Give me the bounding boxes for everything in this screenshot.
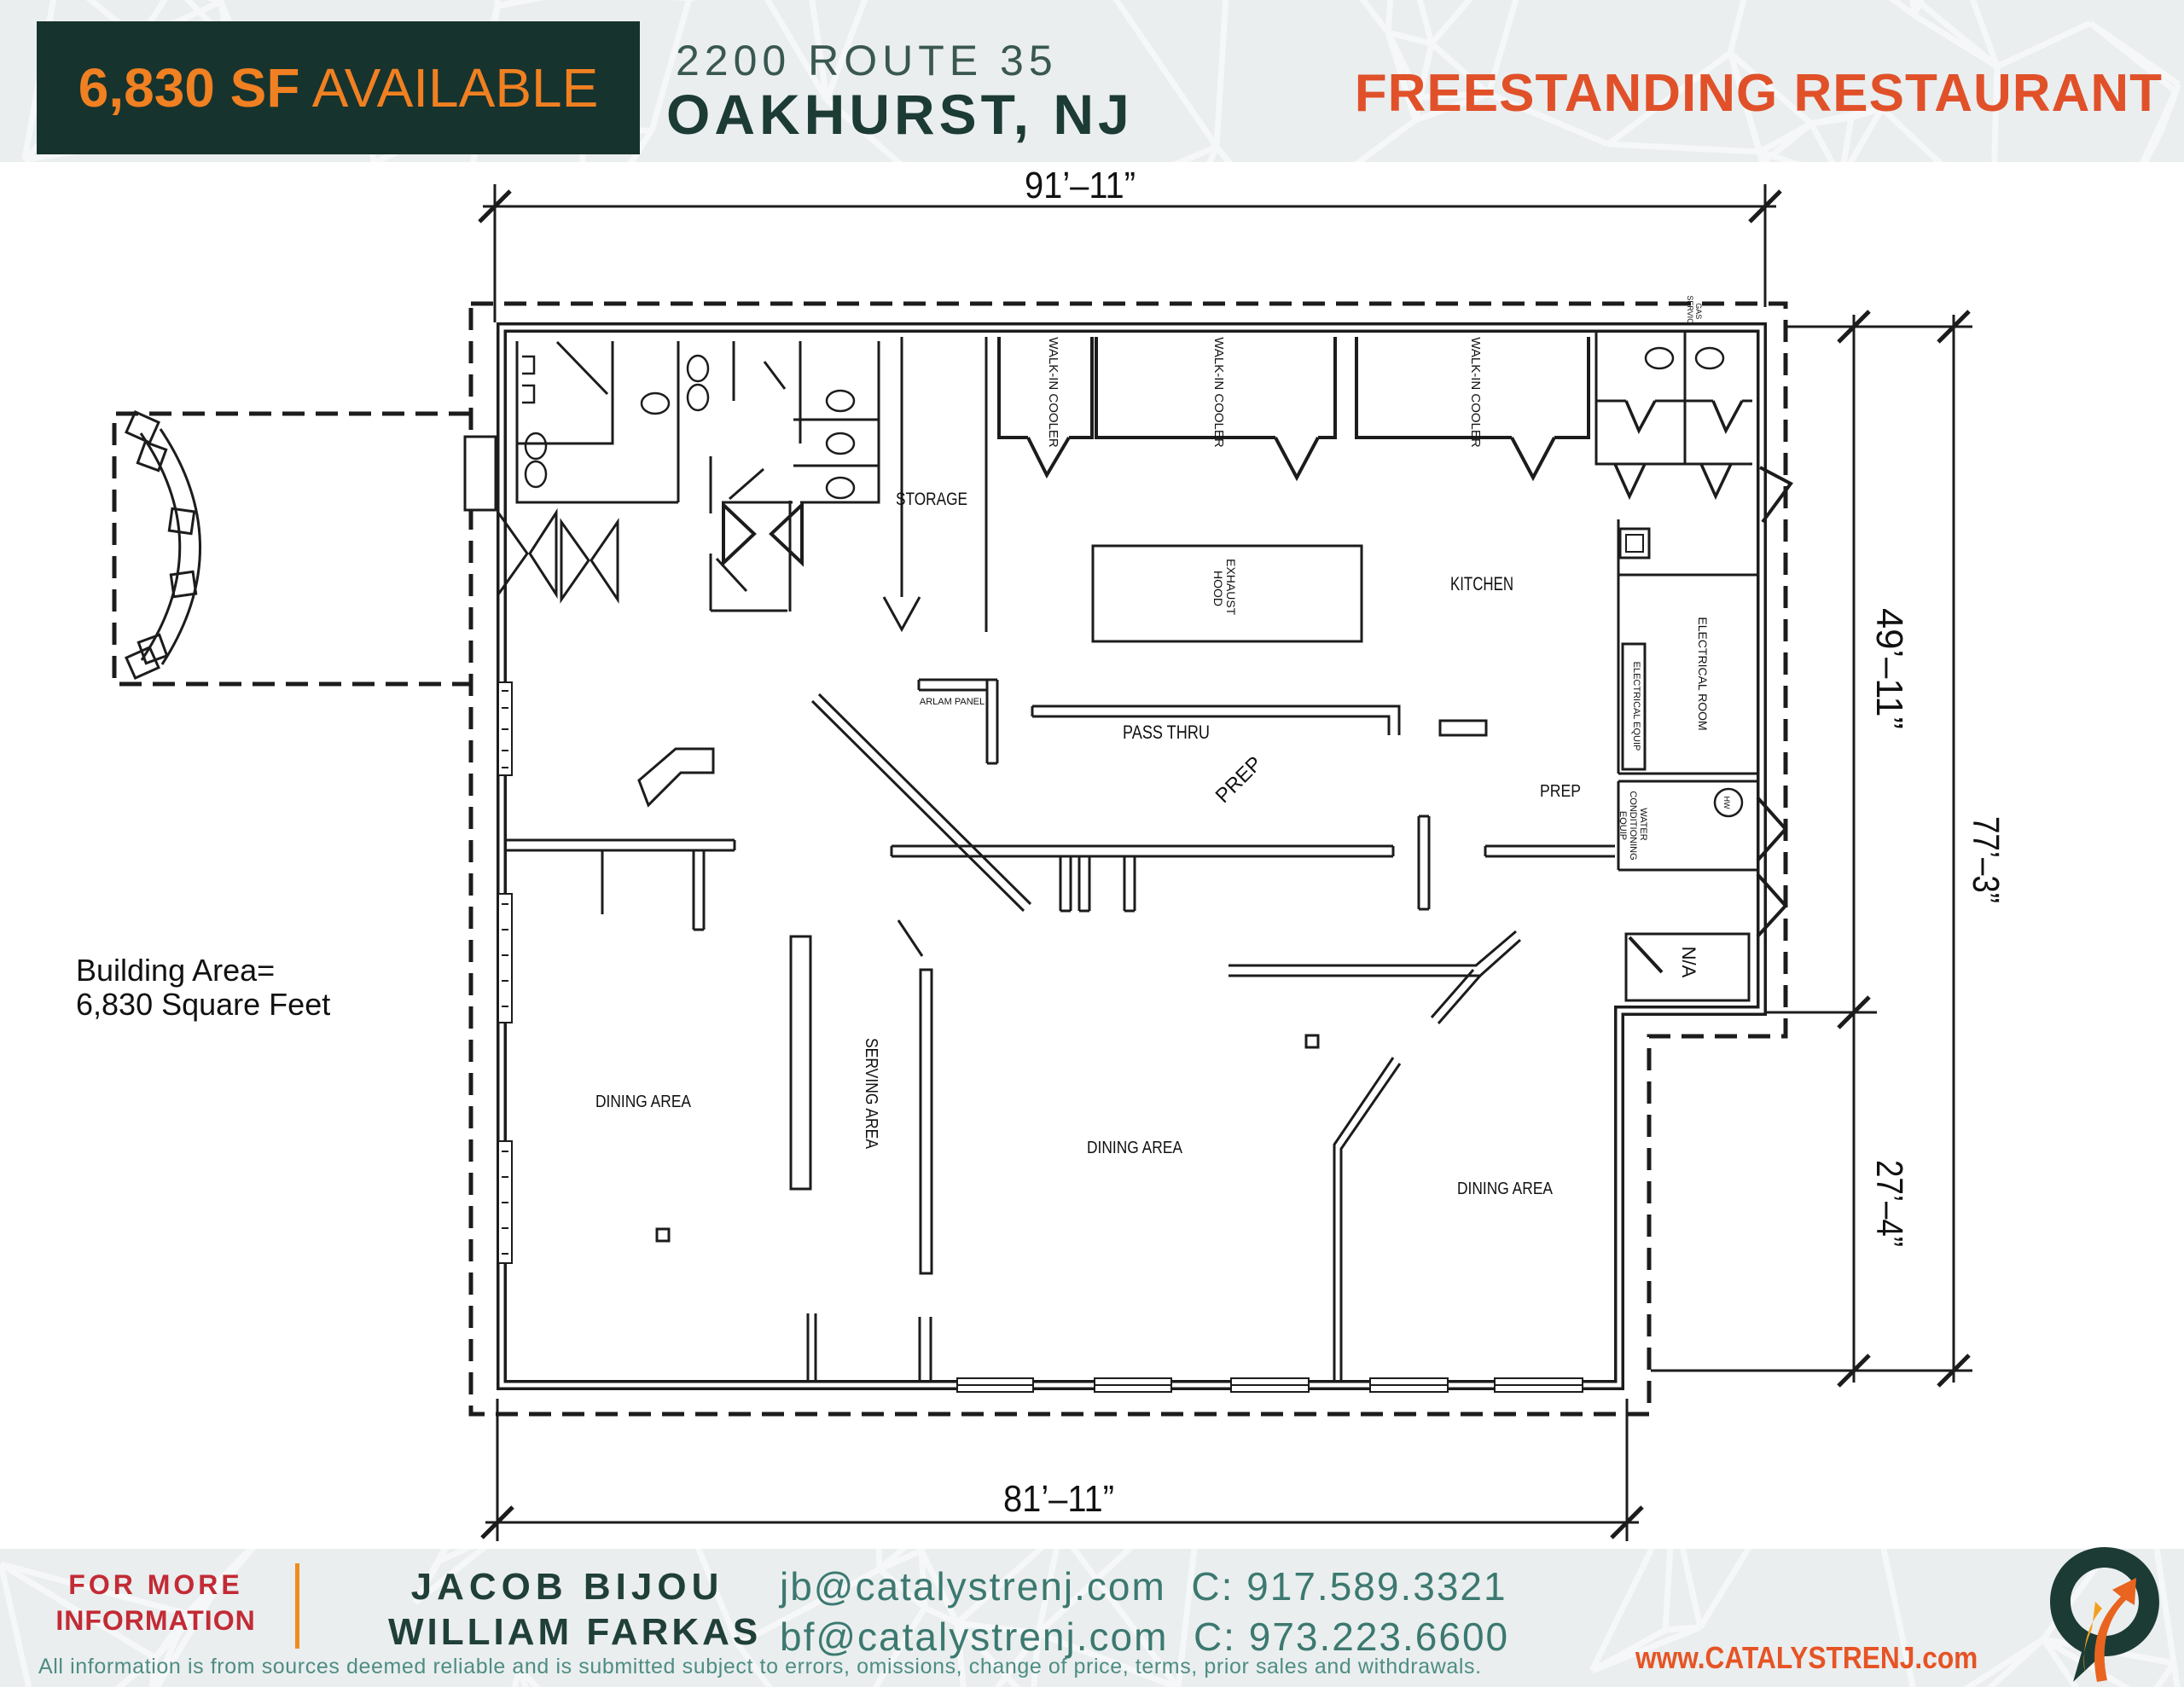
svg-text:DINING AREA: DINING AREA [1457, 1180, 1554, 1198]
svg-text:PREP: PREP [1540, 782, 1581, 801]
svg-text:HW: HW [1722, 797, 1731, 809]
svg-text:KITCHEN: KITCHEN [1450, 573, 1513, 594]
svg-text:81’–11”: 81’–11” [1003, 1478, 1114, 1520]
svg-text:49’–11”: 49’–11” [1868, 608, 1910, 729]
svg-text:6,830 Square Feet: 6,830 Square Feet [76, 987, 330, 1022]
svg-text:ELECTRICAL EQUIP: ELECTRICAL EQUIP [1631, 662, 1641, 751]
svg-text:91’–11”: 91’–11” [1025, 165, 1136, 206]
svg-text:DINING AREA: DINING AREA [595, 1093, 692, 1111]
svg-text:77’–3”: 77’–3” [1965, 816, 2007, 903]
svg-text:ELECTRICAL ROOM: ELECTRICAL ROOM [1696, 617, 1710, 730]
svg-text:WALK-IN COOLER: WALK-IN COOLER [1211, 337, 1226, 448]
svg-text:WALK-IN COOLER: WALK-IN COOLER [1468, 337, 1483, 448]
svg-text:STORAGE: STORAGE [896, 490, 967, 509]
svg-text:WALK-IN COOLER: WALK-IN COOLER [1046, 337, 1060, 448]
svg-text:27’–4”: 27’–4” [1868, 1160, 1910, 1247]
svg-text:EXHAUST HOOD: EXHAUST HOOD [1211, 559, 1238, 618]
svg-text:DINING AREA: DINING AREA [1087, 1139, 1183, 1157]
svg-text:PREP: PREP [1211, 752, 1267, 808]
svg-text:WATER CONDITIONINGEQUIP: WATER CONDITIONINGEQUIP [1618, 791, 1648, 860]
svg-text:N/A: N/A [1678, 947, 1699, 978]
svg-text:Building Area=: Building Area= [76, 953, 275, 988]
svg-text:PASS THRU: PASS THRU [1123, 722, 1210, 743]
svg-text:SERVING AREA: SERVING AREA [862, 1038, 880, 1150]
svg-text:ARLAM PANEL: ARLAM PANEL [920, 697, 985, 707]
